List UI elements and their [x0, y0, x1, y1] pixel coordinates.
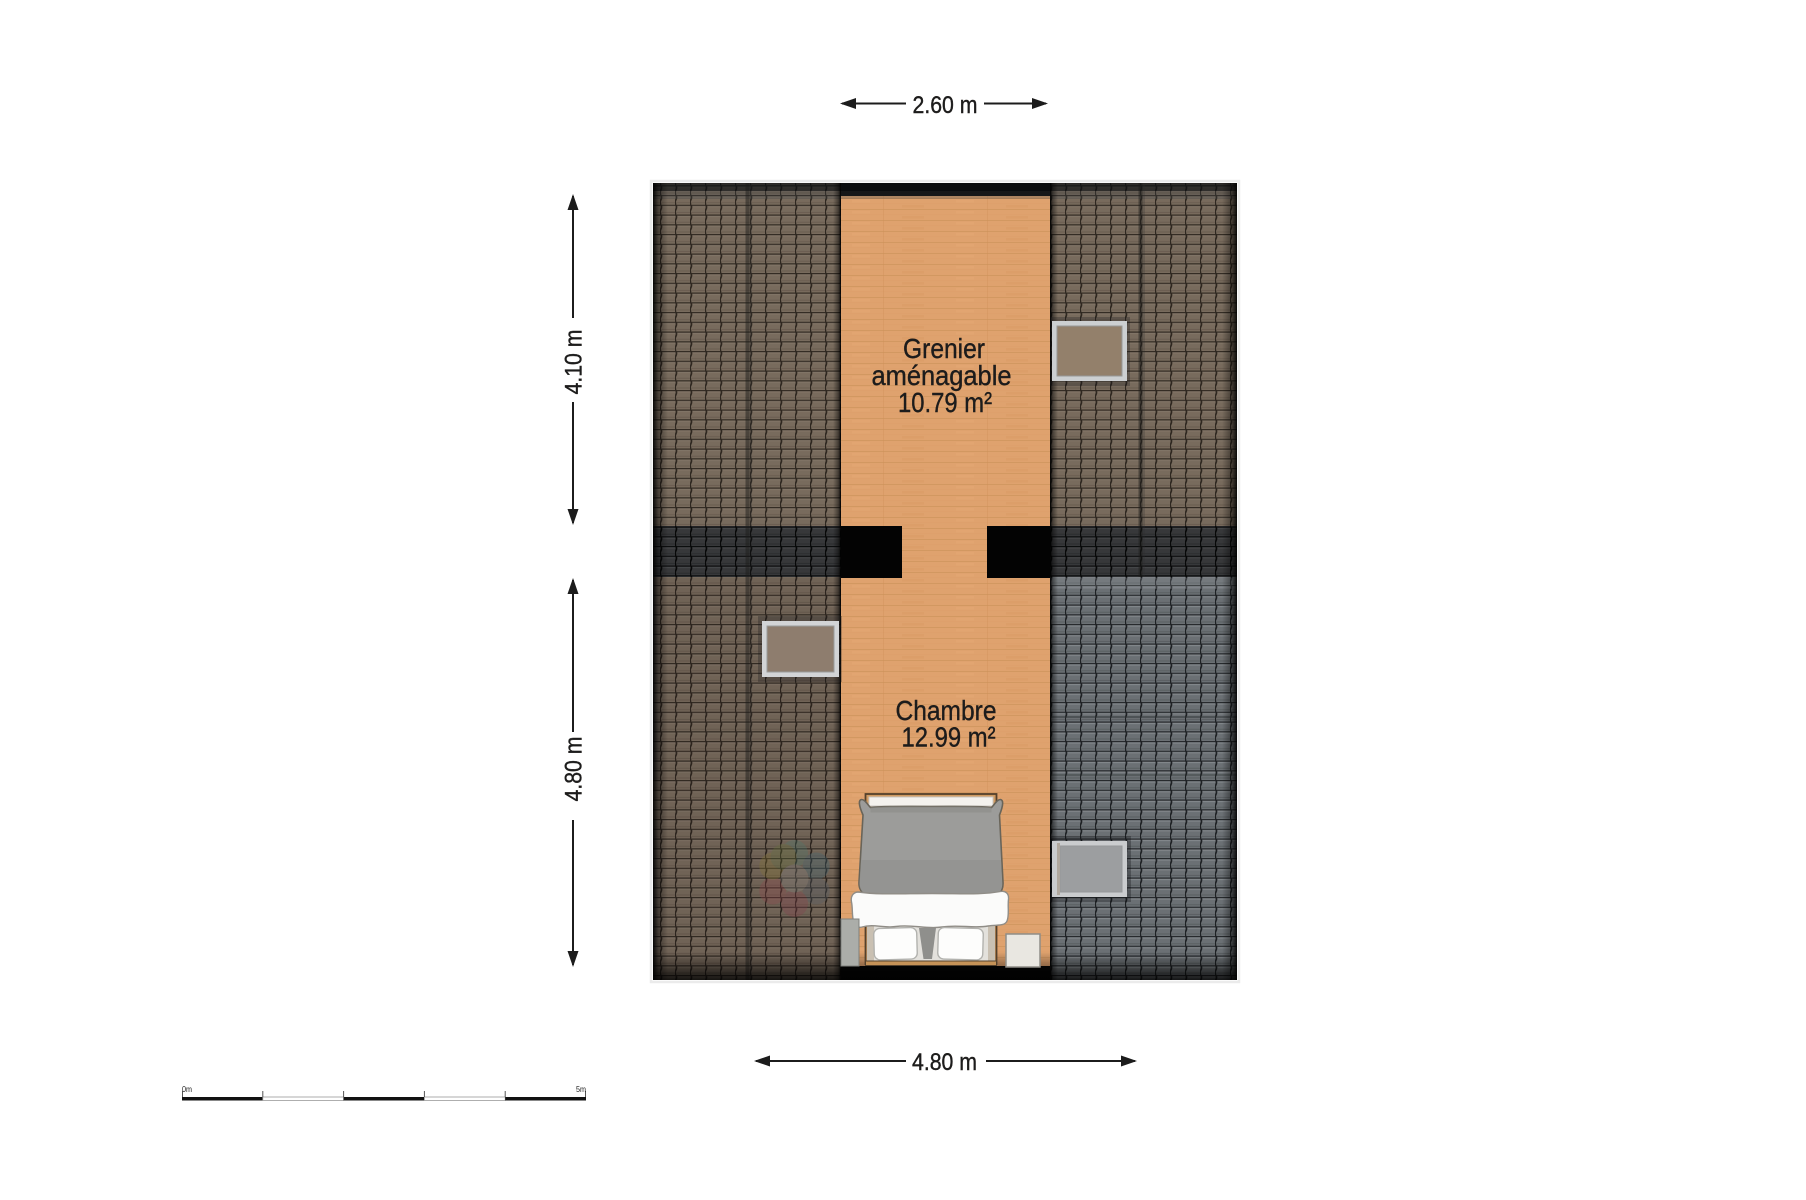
svg-text:4.80 m: 4.80 m — [912, 1049, 977, 1076]
svg-text:10.79 m²: 10.79 m² — [898, 387, 992, 418]
svg-text:2.60 m: 2.60 m — [913, 92, 978, 119]
svg-text:5m: 5m — [576, 1085, 586, 1094]
svg-text:0m: 0m — [182, 1085, 192, 1094]
svg-text:4.10 m: 4.10 m — [561, 330, 588, 395]
svg-text:4.80 m: 4.80 m — [561, 737, 588, 802]
svg-text:12.99 m²: 12.99 m² — [902, 722, 996, 753]
